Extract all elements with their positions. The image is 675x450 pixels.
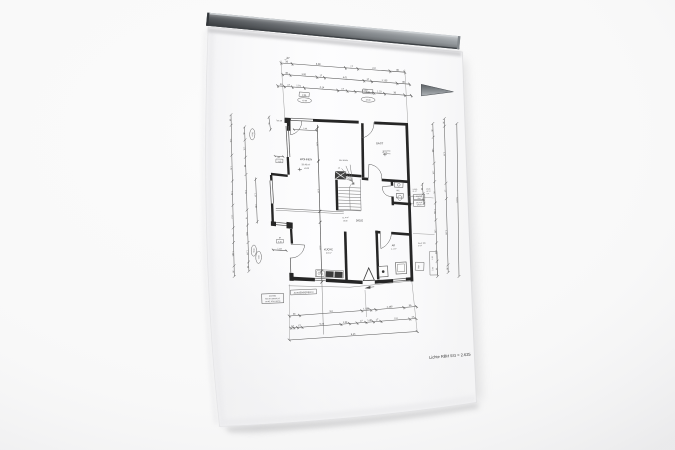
svg-text:±0.00: ±0.00 <box>366 99 371 101</box>
svg-text:1.26: 1.26 <box>434 250 436 254</box>
svg-text:11.4 m²: 11.4 m² <box>342 216 349 219</box>
svg-text:76: 76 <box>231 234 233 236</box>
svg-text:51: 51 <box>267 123 269 125</box>
svg-text:76: 76 <box>245 217 247 219</box>
svg-text:1.10: 1.10 <box>278 161 282 163</box>
svg-text:GAST: GAST <box>376 141 384 145</box>
svg-text:3.135: 3.135 <box>445 230 447 235</box>
svg-text:2.26: 2.26 <box>244 190 246 194</box>
svg-text:36: 36 <box>246 266 248 268</box>
svg-text:+0.02: +0.02 <box>254 248 256 253</box>
svg-text:1.01: 1.01 <box>434 230 436 234</box>
svg-text:36: 36 <box>232 271 234 273</box>
svg-text:84+10+84: 84+10+84 <box>339 160 348 162</box>
svg-text:ZULAUF: ZULAUF <box>416 201 423 204</box>
svg-text:AR: AR <box>392 244 396 247</box>
svg-text:EL.VT: EL.VT <box>413 191 417 193</box>
svg-text:76: 76 <box>421 198 423 200</box>
svg-text:2.0: 2.0 <box>366 308 369 310</box>
svg-text:1.135: 1.135 <box>433 209 435 214</box>
svg-text:3.26: 3.26 <box>443 152 445 156</box>
svg-text:2.01: 2.01 <box>254 204 256 208</box>
svg-text:±0.00: ±0.00 <box>302 100 307 102</box>
svg-text:750 SE: 750 SE <box>276 120 283 122</box>
svg-text:1.135: 1.135 <box>246 250 248 255</box>
svg-text:45x45: 45x45 <box>426 188 430 190</box>
svg-text:DIELE: DIELE <box>356 219 364 222</box>
svg-text:28.46 m²: 28.46 m² <box>301 163 310 166</box>
svg-text:±0.00: ±0.00 <box>343 220 348 222</box>
svg-text:1.35: 1.35 <box>432 256 434 260</box>
svg-text:2.51: 2.51 <box>229 139 231 143</box>
svg-text:2.26: 2.26 <box>254 193 256 197</box>
svg-text:UP 17: UP 17 <box>426 191 430 193</box>
svg-text:1.01: 1.01 <box>432 171 434 175</box>
svg-text:4.1 m²: 4.1 m² <box>391 247 397 250</box>
svg-text:36: 36 <box>242 132 244 134</box>
svg-text:1.51: 1.51 <box>230 166 232 170</box>
svg-text:BW: BW <box>418 265 420 268</box>
svg-text:36: 36 <box>435 268 437 270</box>
svg-text:1.7: 1.7 <box>444 190 446 193</box>
svg-text:1.01: 1.01 <box>245 232 247 236</box>
svg-text:1.88: 1.88 <box>431 148 433 152</box>
svg-text:9.8 m²: 9.8 m² <box>326 252 332 255</box>
svg-text:WOHNEN: WOHNEN <box>300 157 312 161</box>
svg-text:2.10: 2.10 <box>278 241 282 243</box>
svg-text:64+10+84: 64+10+84 <box>383 150 391 152</box>
svg-text:+0.02: +0.02 <box>252 132 254 137</box>
svg-text:WC: WC <box>396 190 400 192</box>
svg-text:2.26: 2.26 <box>432 267 434 271</box>
svg-text:1.385: 1.385 <box>231 251 233 256</box>
svg-text:1.51: 1.51 <box>243 147 245 151</box>
svg-text:KÜCHE: KÜCHE <box>324 247 333 251</box>
svg-text:1.135: 1.135 <box>277 248 282 250</box>
svg-text:76: 76 <box>432 191 434 193</box>
svg-text:88: 88 <box>420 188 422 190</box>
svg-text:36: 36 <box>229 119 231 121</box>
svg-text:36: 36 <box>430 129 432 131</box>
svg-text:1.26: 1.26 <box>230 191 232 195</box>
svg-text:1.13: 1.13 <box>231 215 233 219</box>
svg-text:36: 36 <box>442 121 444 123</box>
svg-text:-0.02: -0.02 <box>258 255 260 259</box>
svg-text:88: 88 <box>243 165 245 167</box>
svg-text:1.40: 1.40 <box>303 128 307 130</box>
svg-text:36: 36 <box>446 268 448 270</box>
